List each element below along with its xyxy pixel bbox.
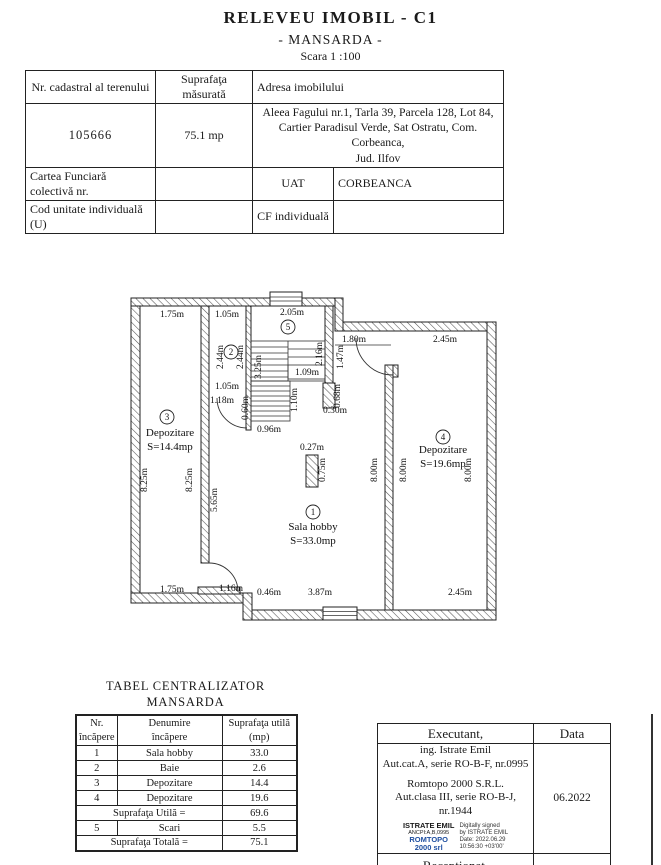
dim-label: 8.25m — [140, 467, 150, 492]
dim-label: 1.16m — [219, 584, 244, 594]
summary-title-line1: TABEL CENTRALIZATOR — [78, 679, 293, 695]
uat-value: CORBEANCA — [334, 167, 504, 200]
document-title: RELEVEU IMOBIL - C1 — [0, 8, 661, 28]
stamp-identity: ISTRATE EMIL ANCPI:A,B,0995 ROMTOPO 2000… — [403, 822, 455, 853]
date-value: 06.2022 — [534, 744, 611, 854]
company-name: Romtopo 2000 S.R.L. — [378, 778, 533, 792]
dim-label: 1.05m — [215, 382, 240, 392]
svg-text:3: 3 — [165, 412, 170, 422]
useful-area-label: Suprafaţa Utilă = — [76, 806, 222, 821]
svg-text:Depozitare: Depozitare — [146, 427, 194, 439]
total-area-label: Suprafaţa Totală = — [76, 836, 222, 851]
svg-text:2: 2 — [229, 347, 234, 357]
company-authorization: Aut.clasa III, serie RO-B-J, nr.1944 — [378, 791, 533, 819]
dim-label: 0.46m — [257, 588, 282, 598]
land-book-label: Cartea Funciară colectivă nr. — [26, 167, 156, 200]
dim-label: 0.27m — [300, 443, 325, 453]
dim-label: 1.10m — [290, 387, 300, 412]
dim-label: 0.60m — [241, 395, 251, 420]
summary-table-title: TABEL CENTRALIZATOR MANSARDA — [78, 679, 293, 710]
dim-label: 0.96m — [257, 425, 282, 435]
dim-label: 1.47m — [336, 344, 346, 369]
dim-label: 2.45m — [433, 335, 458, 345]
data-header: Data — [534, 724, 611, 744]
dim-label: 8.00m — [399, 457, 409, 482]
title-block: RELEVEU IMOBIL - C1 - MANSARDA - Scara 1… — [0, 8, 661, 64]
executant-name: ing. Istrate Emil — [378, 744, 533, 758]
address-header: Adresa imobilului — [253, 71, 504, 104]
received-label: Recepţionat, — [378, 853, 534, 865]
dim-label: 3.87m — [308, 588, 333, 598]
executant-details: ing. Istrate Emil Aut.cat.A, serie RO-B-… — [378, 744, 534, 854]
document-page: RELEVEU IMOBIL - C1 - MANSARDA - Scara 1… — [0, 0, 661, 865]
unit-code-value — [156, 200, 253, 233]
dim-label: 3.25m — [254, 354, 264, 379]
address-line: Aleea Fagului nr.1, Tarla 39, Parcela 12… — [257, 105, 499, 120]
dim-label: 0.68m — [333, 383, 343, 408]
dim-label: 0.75m — [318, 457, 328, 482]
dim-label: 2.44m — [216, 344, 226, 369]
room-label-scari: 5 — [281, 320, 295, 334]
table-row: 4Depozitare19.6 — [76, 791, 297, 806]
room-labels: 1 Sala hobby S=33.0mp 2 3 Depozitare S=1… — [146, 320, 467, 547]
window — [323, 607, 357, 620]
svg-text:S=33.0mp: S=33.0mp — [290, 535, 336, 547]
document-subtitle: - MANSARDA - — [0, 32, 661, 48]
land-book-value — [156, 167, 253, 200]
summary-title-line2: MANSARDA — [78, 695, 293, 711]
svg-text:S=14.4mp: S=14.4mp — [147, 441, 193, 453]
document-scale: Scara 1 :100 — [0, 49, 661, 64]
cadastral-number: 105666 — [26, 104, 156, 168]
room-label-sala-hobby: 1 Sala hobby S=33.0mp — [288, 505, 338, 547]
room-label-depozitare-3: 3 Depozitare S=14.4mp — [146, 410, 194, 453]
executant-header: Executant, — [378, 724, 534, 744]
received-value — [534, 853, 611, 865]
executant-table: Executant, Data ing. Istrate Emil Aut.ca… — [377, 723, 611, 865]
svg-text:Sala hobby: Sala hobby — [288, 521, 338, 533]
summary-header-area: Suprafaţa utilă(mp) — [222, 715, 297, 746]
staircase — [251, 341, 325, 421]
cadastral-header: Nr. cadastral al terenului — [26, 71, 156, 104]
measured-area: 75.1 mp — [156, 104, 253, 168]
dim-label: 8.00m — [370, 457, 380, 482]
floor-plan: 1.75m 1.05m 2.05m 1.80m 2.45m 1.05m 1.18… — [120, 290, 530, 635]
svg-text:Depozitare: Depozitare — [419, 444, 467, 456]
room-label-baie: 2 — [224, 345, 238, 359]
address-line: Jud. Ilfov — [257, 151, 499, 166]
address-line: Cartier Paradisul Verde, Sat Ostratu, Co… — [257, 120, 499, 150]
stamp-name: ISTRATE EMIL — [403, 822, 455, 830]
unit-code-label: Cod unitate individuală (U) — [26, 200, 156, 233]
table-row: 2Baie2.6 — [76, 761, 297, 776]
dim-label: 1.09m — [295, 368, 320, 378]
dim-label: 1.80m — [342, 335, 367, 345]
svg-text:5: 5 — [286, 322, 291, 332]
svg-text:1: 1 — [311, 507, 316, 517]
summary-header-row: Nr.încăpere Denumireîncăpere Suprafaţa u… — [76, 715, 297, 746]
executant-authorization: Aut.cat.A, serie RO-B-F, nr.0995 — [378, 758, 533, 772]
dim-label: 1.75m — [160, 585, 185, 595]
digital-signature-stamp: ISTRATE EMIL ANCPI:A,B,0995 ROMTOPO 2000… — [378, 822, 533, 853]
table-row: 3Depozitare14.4 — [76, 776, 297, 791]
dim-label: 2.45m — [448, 588, 473, 598]
table-row: 1Sala hobby33.0 — [76, 746, 297, 761]
digital-signature-text: Digitally signed by ISTRATE EMIL Date: 2… — [459, 823, 508, 852]
useful-area-value: 69.6 — [222, 806, 297, 821]
summary-total-row: Suprafaţa Totală = 75.1 — [76, 836, 297, 851]
summary-table: Nr.încăpere Denumireîncăpere Suprafaţa u… — [75, 714, 298, 852]
total-area-value: 75.1 — [222, 836, 297, 851]
dim-label: 1.18m — [210, 396, 235, 406]
dim-label: 2.16m — [315, 341, 325, 366]
table-row: 5Scari5.5 — [76, 821, 297, 836]
svg-text:S=19.6mp: S=19.6mp — [420, 458, 466, 470]
uat-label: UAT — [253, 167, 334, 200]
summary-header-nr: Nr.încăpere — [76, 715, 117, 746]
cf-label: CF individuală — [253, 200, 334, 233]
cf-value — [334, 200, 504, 233]
cadastral-info-table: Nr. cadastral al terenului Suprafaţa măs… — [25, 70, 504, 234]
dim-label: 2.44m — [236, 344, 246, 369]
window — [270, 292, 302, 306]
dim-label: 2.05m — [280, 308, 305, 318]
dim-label: 8.25m — [185, 467, 195, 492]
dim-label: 1.75m — [160, 310, 185, 320]
summary-header-name: Denumireîncăpere — [117, 715, 222, 746]
room-label-depozitare-4: 4 Depozitare S=19.6mp — [419, 430, 467, 470]
dim-label: 5.65m — [210, 487, 220, 512]
dim-label: 1.05m — [215, 310, 240, 320]
svg-text:4: 4 — [441, 432, 446, 442]
area-header: Suprafaţa măsurată — [156, 71, 253, 104]
summary-useful-row: Suprafaţa Utilă = 69.6 — [76, 806, 297, 821]
stamp-org: 2000 srl — [403, 844, 455, 852]
property-address: Aleea Fagului nr.1, Tarla 39, Parcela 12… — [253, 104, 504, 168]
page-border-line — [651, 714, 653, 865]
